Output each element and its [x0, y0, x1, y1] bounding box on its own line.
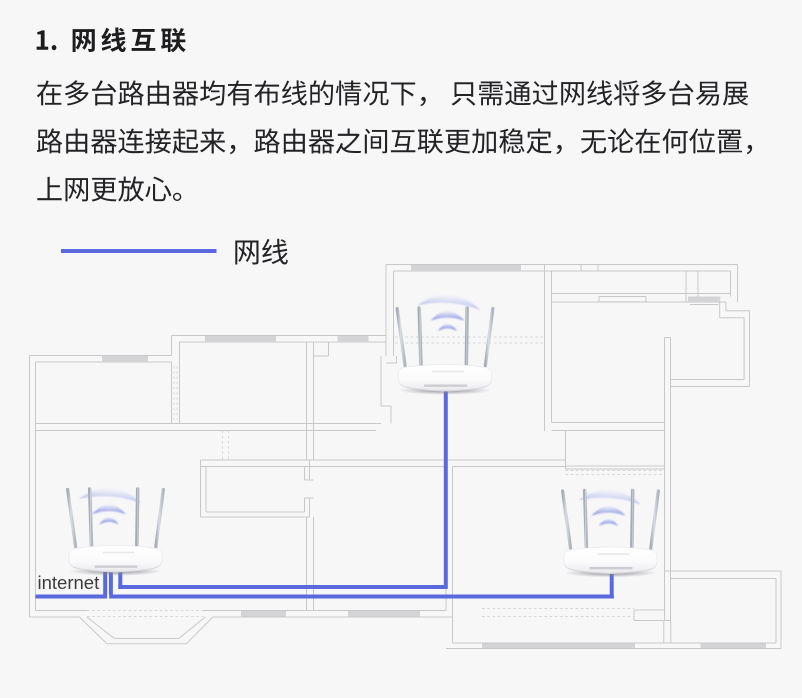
- svg-text:internet: internet: [38, 572, 100, 593]
